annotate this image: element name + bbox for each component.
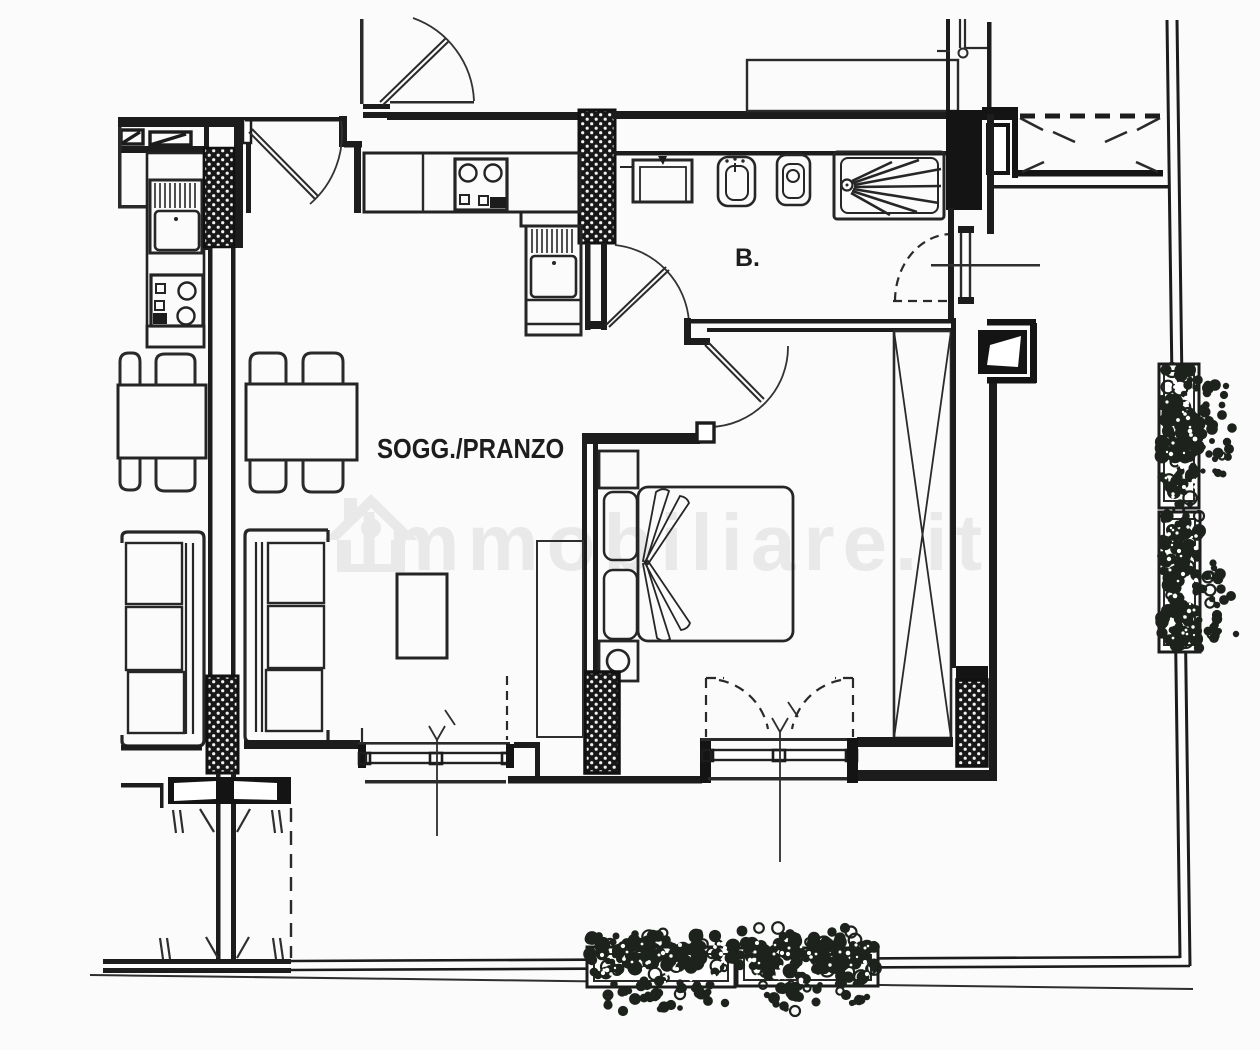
svg-text:SOGG./PRANZO: SOGG./PRANZO (377, 432, 564, 464)
svg-text:B.: B. (735, 244, 760, 272)
svg-text:immobiliare.it: immobiliare.it (358, 498, 990, 587)
